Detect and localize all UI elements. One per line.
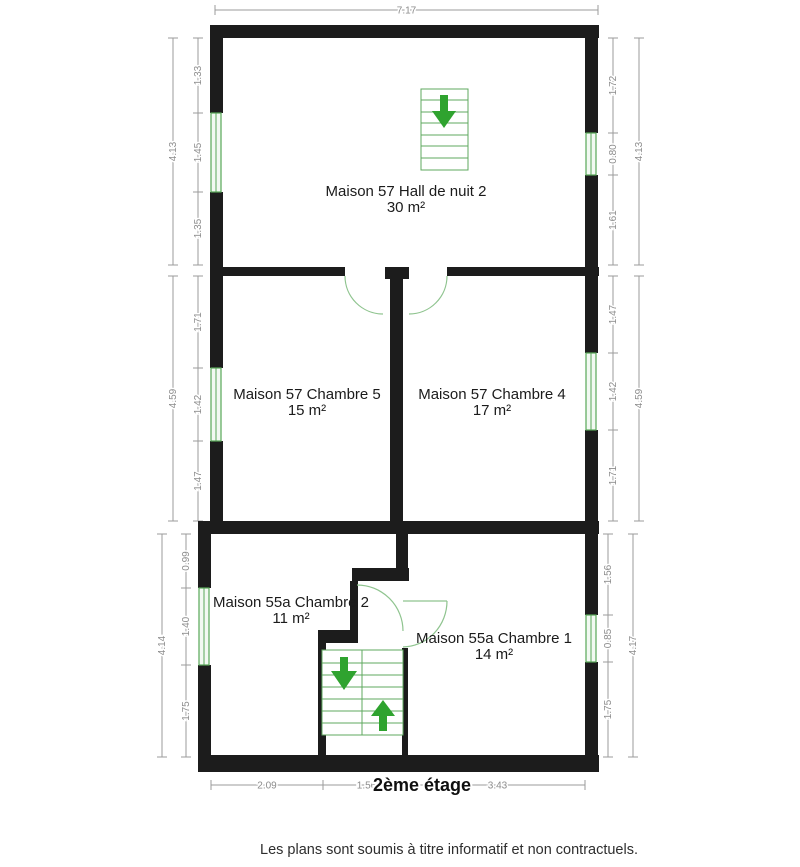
wall-segment (198, 534, 211, 588)
wall-segment (210, 192, 223, 276)
wall-segment (447, 267, 599, 276)
dimension-label: 1.47 (608, 304, 619, 324)
wall-segment (585, 175, 598, 276)
dimension-label: 1.40 (181, 616, 192, 636)
dimension-label: 1.72 (608, 75, 619, 95)
disclaimer-text: Les plans sont soumis à titre informatif… (260, 842, 638, 858)
wall-segment (198, 665, 211, 757)
dimension-label: 1.45 (193, 142, 204, 162)
door-swing-arc (345, 276, 383, 314)
dimension-label: 1.42 (608, 381, 619, 401)
floor-title: 2ème étage (373, 775, 471, 795)
dimension-label: 1.71 (608, 465, 619, 485)
stair-arrow-down-icon (340, 657, 348, 672)
wall-segment (210, 441, 223, 523)
wall-segment (390, 276, 403, 523)
wall-segment (585, 662, 598, 757)
wall-segment (198, 755, 599, 772)
room-name-label: Maison 57 Chambre 4 (418, 386, 566, 403)
room-area-label: 17 m² (473, 402, 511, 419)
wall-segment (210, 38, 223, 113)
dimension-label: 0.85 (603, 628, 614, 648)
dimension-label: 1.33 (193, 65, 204, 85)
dimension-label: 1.75 (603, 699, 614, 719)
dimension-label: 4.59 (634, 388, 645, 408)
stairs-lower (322, 650, 403, 735)
dimension-label: 0.80 (608, 144, 619, 164)
room-name-label: Maison 55a Chambre 2 (213, 594, 369, 611)
dimension-label: 7.17 (397, 6, 417, 17)
room-area-label: 30 m² (387, 199, 425, 216)
wall-segment (585, 534, 598, 615)
door-swing-arc (409, 276, 447, 314)
dimension-label: 4.59 (168, 388, 179, 408)
dimension-label: 1.42 (193, 394, 204, 414)
room-name-label: Maison 57 Hall de nuit 2 (326, 183, 487, 200)
stair-arrow-down-icon (440, 95, 448, 111)
stair-arrow-up-icon (379, 715, 387, 731)
room-area-label: 11 m² (272, 610, 309, 627)
stairs-upper (421, 89, 468, 170)
dimension-label: 1.47 (193, 471, 204, 491)
wall-segment (585, 276, 598, 353)
wall-segment (210, 25, 599, 38)
dimension-label: 1.75 (181, 701, 192, 721)
dimension-label: 2.09 (257, 781, 277, 792)
dimension-label: 4.13 (168, 141, 179, 161)
room-name-label: Maison 55a Chambre 1 (416, 630, 572, 647)
wall-segment (318, 630, 358, 643)
dimension-label: 3.43 (488, 781, 508, 792)
wall-segment (585, 430, 598, 523)
room-area-label: 14 m² (475, 646, 513, 663)
dimension-label: 1.35 (193, 218, 204, 238)
dimension-label: 1.61 (608, 210, 619, 230)
wall-segment (210, 267, 345, 276)
floor-plan: 1.331.451.354.131.720.801.614.131.711.42… (0, 0, 800, 862)
wall-segment (352, 568, 409, 581)
room-name-label: Maison 57 Chambre 5 (233, 386, 381, 403)
dimension-label: 1.56 (603, 564, 614, 584)
wall-segment (210, 276, 223, 368)
wall-segment (585, 38, 598, 133)
dimension-label: 4.17 (628, 635, 639, 655)
wall-segment (198, 521, 599, 534)
dimension-label: 0.99 (181, 551, 192, 571)
dimension-label: 4.14 (157, 635, 168, 655)
floor-plan-canvas: 1.331.451.354.131.720.801.614.131.711.42… (0, 0, 800, 862)
room-area-label: 15 m² (288, 402, 326, 419)
dimension-label: 1.71 (193, 312, 204, 332)
dimension-label: 4.13 (634, 141, 645, 161)
wall-segment (396, 534, 408, 570)
